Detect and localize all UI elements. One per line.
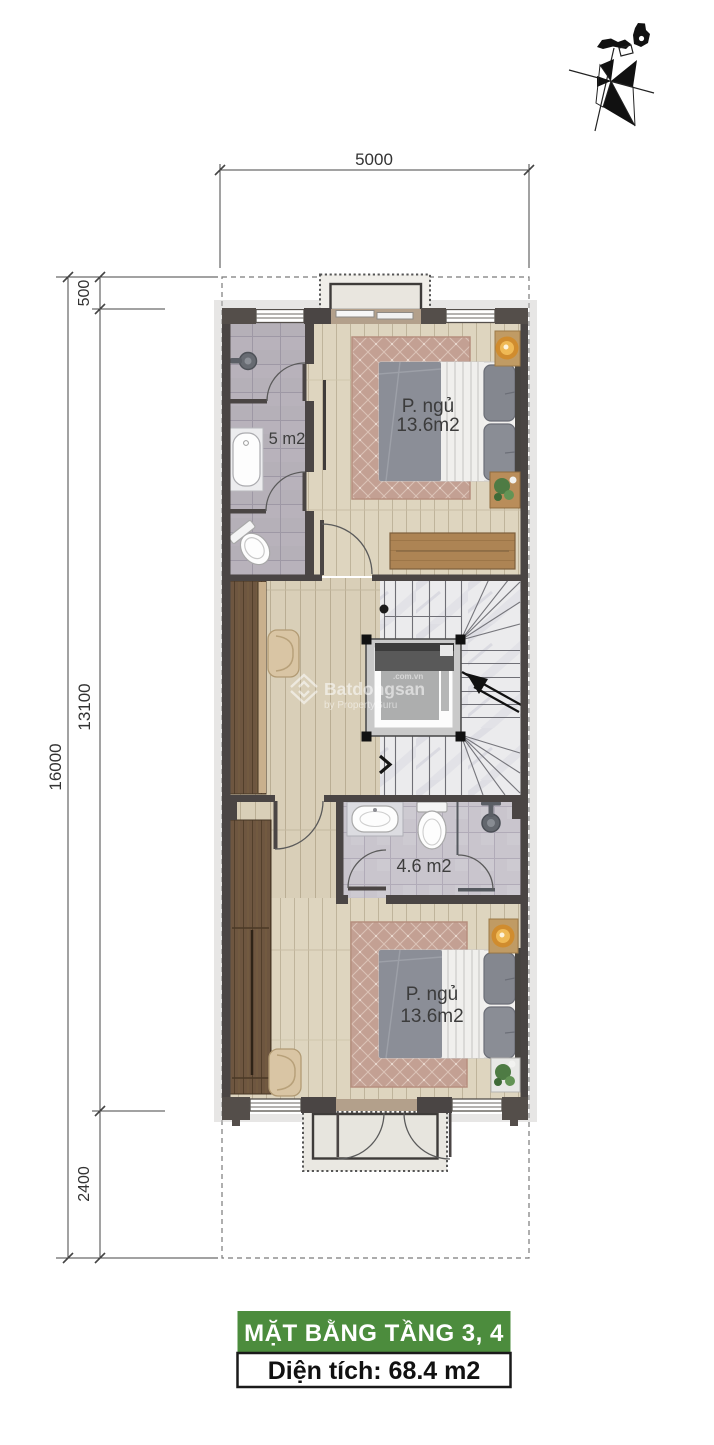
svg-text:13.6m2: 13.6m2 bbox=[400, 1006, 463, 1027]
svg-text:13100: 13100 bbox=[75, 683, 94, 730]
svg-text:.com.vn: .com.vn bbox=[393, 672, 423, 681]
svg-text:500: 500 bbox=[76, 280, 93, 307]
svg-text:Diện tích: 68.4 m2: Diện tích: 68.4 m2 bbox=[268, 1357, 481, 1385]
svg-text:4.6 m2: 4.6 m2 bbox=[396, 856, 451, 876]
svg-text:2400: 2400 bbox=[76, 1166, 93, 1202]
svg-text:13.6m2: 13.6m2 bbox=[396, 415, 459, 436]
svg-text:Batdongsan: Batdongsan bbox=[324, 679, 425, 699]
svg-text:5000: 5000 bbox=[355, 150, 393, 169]
svg-text:by PropertyGuru: by PropertyGuru bbox=[324, 700, 397, 711]
svg-text:5 m2: 5 m2 bbox=[269, 430, 306, 448]
svg-text:16000: 16000 bbox=[46, 743, 65, 790]
svg-text:P. ngủ: P. ngủ bbox=[402, 396, 454, 417]
svg-text:MẶT BẰNG TẦNG 3, 4: MẶT BẰNG TẦNG 3, 4 bbox=[244, 1319, 504, 1347]
svg-text:P. ngủ: P. ngủ bbox=[406, 984, 458, 1005]
